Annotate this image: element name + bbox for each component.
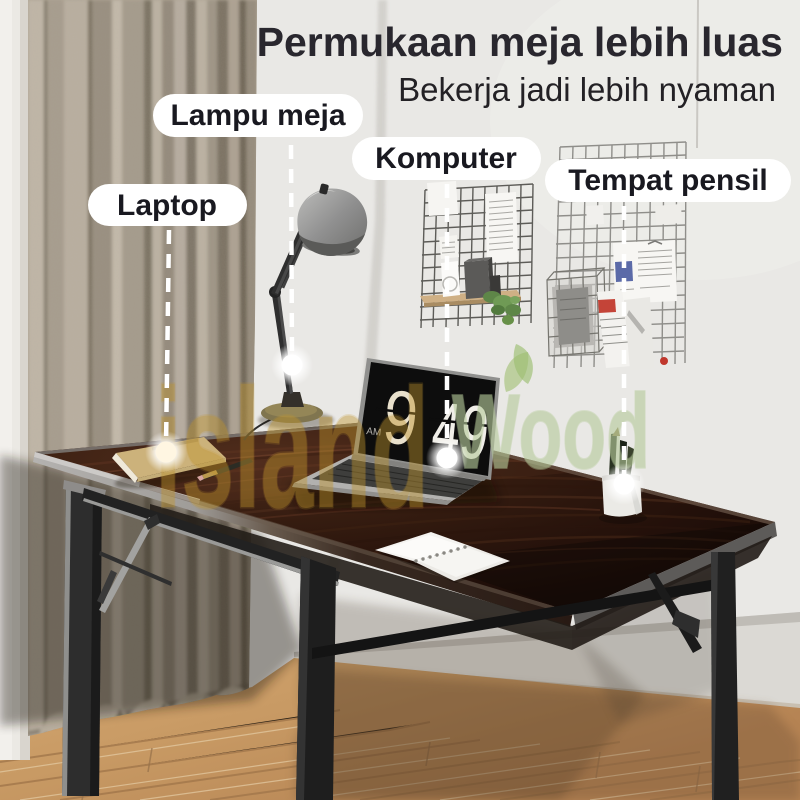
- svg-text:Laptop: Laptop: [117, 189, 217, 222]
- svg-text:Bekerja jadi lebih nyaman: Bekerja jadi lebih nyaman: [398, 71, 776, 108]
- svg-text:Permukaan meja lebih luas: Permukaan meja lebih luas: [257, 19, 783, 65]
- svg-text:Tempat pensil: Tempat pensil: [568, 164, 767, 197]
- svg-text:Komputer: Komputer: [375, 142, 517, 175]
- svg-text:Lampu meja: Lampu meja: [170, 99, 345, 132]
